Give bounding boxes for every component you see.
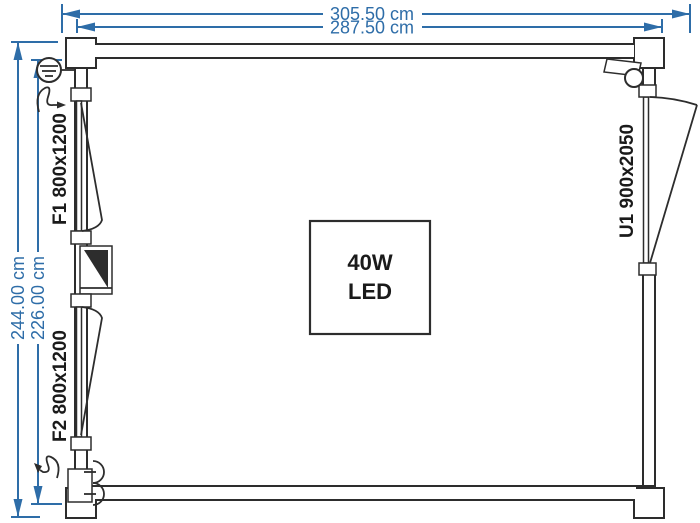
window-frame — [71, 437, 91, 450]
floor-plan-drawing: 305.50 cm 287.50 cm 244.00 cm 226.00 cm — [0, 0, 700, 523]
bottom-wall-face — [76, 487, 636, 499]
inner-height-value: 226.00 cm — [28, 256, 48, 340]
distribution-panel-symbol — [80, 246, 112, 294]
socket-box — [68, 469, 92, 502]
lamp-circle — [37, 58, 61, 82]
led-label-line1: 40W — [347, 250, 392, 275]
switch-squiggle — [40, 456, 59, 478]
window-f1-label: F1 800x1200 — [50, 113, 71, 225]
switch-squiggle — [37, 87, 59, 112]
window-f2-label: F2 800x1200 — [50, 330, 71, 442]
arrowhead-left — [62, 10, 80, 19]
window-frame — [71, 231, 91, 244]
arrowhead-left — [77, 23, 95, 32]
led-fixture: 40W LED — [310, 221, 430, 334]
arrowhead-up — [14, 42, 23, 60]
arrowhead-down — [34, 486, 43, 504]
door-u1-label: U1 900x2050 — [617, 124, 638, 238]
led-box — [310, 221, 430, 334]
door-frame — [639, 263, 656, 275]
arrowhead-right — [644, 23, 662, 32]
led-label-line2: LED — [348, 279, 392, 304]
top-wall-face — [76, 45, 634, 57]
window-frame — [71, 88, 91, 101]
outer-height-value: 244.00 cm — [8, 256, 28, 340]
floor-plan-page: 305.50 cm 287.50 cm 244.00 cm 226.00 cm — [0, 0, 700, 523]
arrowhead-right — [672, 10, 690, 19]
floodlight-head — [625, 69, 643, 87]
door-u1 — [639, 85, 697, 275]
arrowhead-down — [14, 499, 23, 517]
switch-arrow — [57, 102, 66, 109]
inner-width-value: 287.50 cm — [330, 18, 414, 38]
window-glazing-line — [77, 101, 82, 231]
door-frame — [639, 85, 656, 97]
exterior-light-symbol — [604, 59, 643, 87]
window-glazing-line — [77, 307, 82, 437]
corner-post-bottom-right — [634, 488, 664, 518]
door-threshold-line — [644, 97, 649, 263]
switch-symbol-top — [37, 87, 66, 112]
window-frame — [71, 294, 91, 307]
dimension-inner-width: 287.50 cm — [77, 18, 662, 38]
